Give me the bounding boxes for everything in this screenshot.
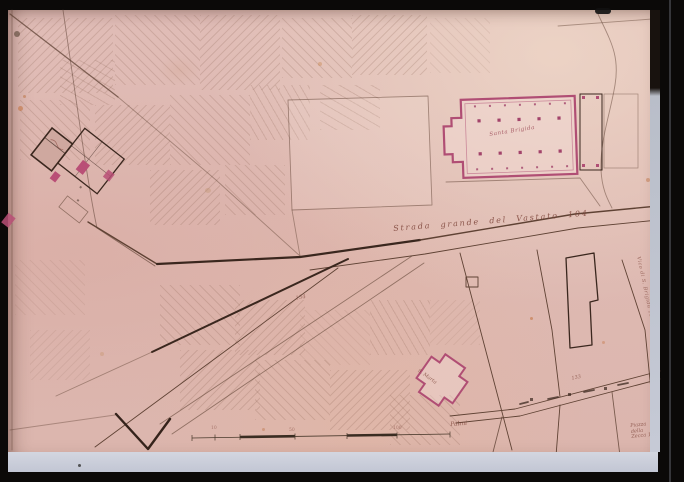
field-hatch [30, 330, 90, 380]
field-hatch [150, 170, 220, 225]
scale-tick-label: 100 [393, 426, 402, 431]
stain [100, 352, 104, 356]
scale-tick-label: 10 [211, 426, 217, 431]
field-hatch [430, 300, 480, 345]
field-hatch [352, 15, 427, 75]
stain [602, 341, 605, 344]
field-hatch [15, 260, 85, 315]
stain [23, 95, 26, 98]
label-piazza: Piazza della Zecca 132 [630, 420, 666, 440]
slide-mount-bottom [8, 452, 658, 472]
stain [14, 31, 20, 37]
stain [158, 55, 200, 85]
field-hatch [170, 95, 250, 165]
field-hatch [250, 85, 310, 140]
slide-edge-highlight [669, 0, 671, 482]
slide-mount-right [650, 10, 660, 452]
field-hatch [60, 60, 115, 105]
field-hatch [430, 18, 490, 73]
field-hatch [255, 360, 330, 420]
film-blemish [595, 8, 611, 14]
label-scale-unit: Palmi [450, 420, 467, 428]
stain [530, 317, 533, 320]
field-hatch [370, 300, 430, 355]
scale-tick-label: 50 [289, 428, 295, 433]
stain [18, 106, 23, 111]
field-hatch [300, 310, 370, 365]
field-hatch [200, 15, 280, 90]
slide-photo: Strada grande del Vastato 104 Santa Brig… [0, 0, 684, 482]
field-hatch [160, 285, 240, 345]
stain [205, 188, 211, 193]
field-hatch [282, 18, 352, 78]
field-hatch [225, 165, 285, 215]
field-hatch [20, 100, 90, 160]
field-hatch [235, 300, 305, 355]
stain [318, 62, 322, 66]
field-hatch [95, 105, 170, 165]
map-paper [8, 10, 650, 454]
mount-speck [78, 464, 81, 467]
stain [262, 428, 265, 431]
field-hatch [320, 85, 380, 130]
field-hatch [180, 350, 260, 410]
